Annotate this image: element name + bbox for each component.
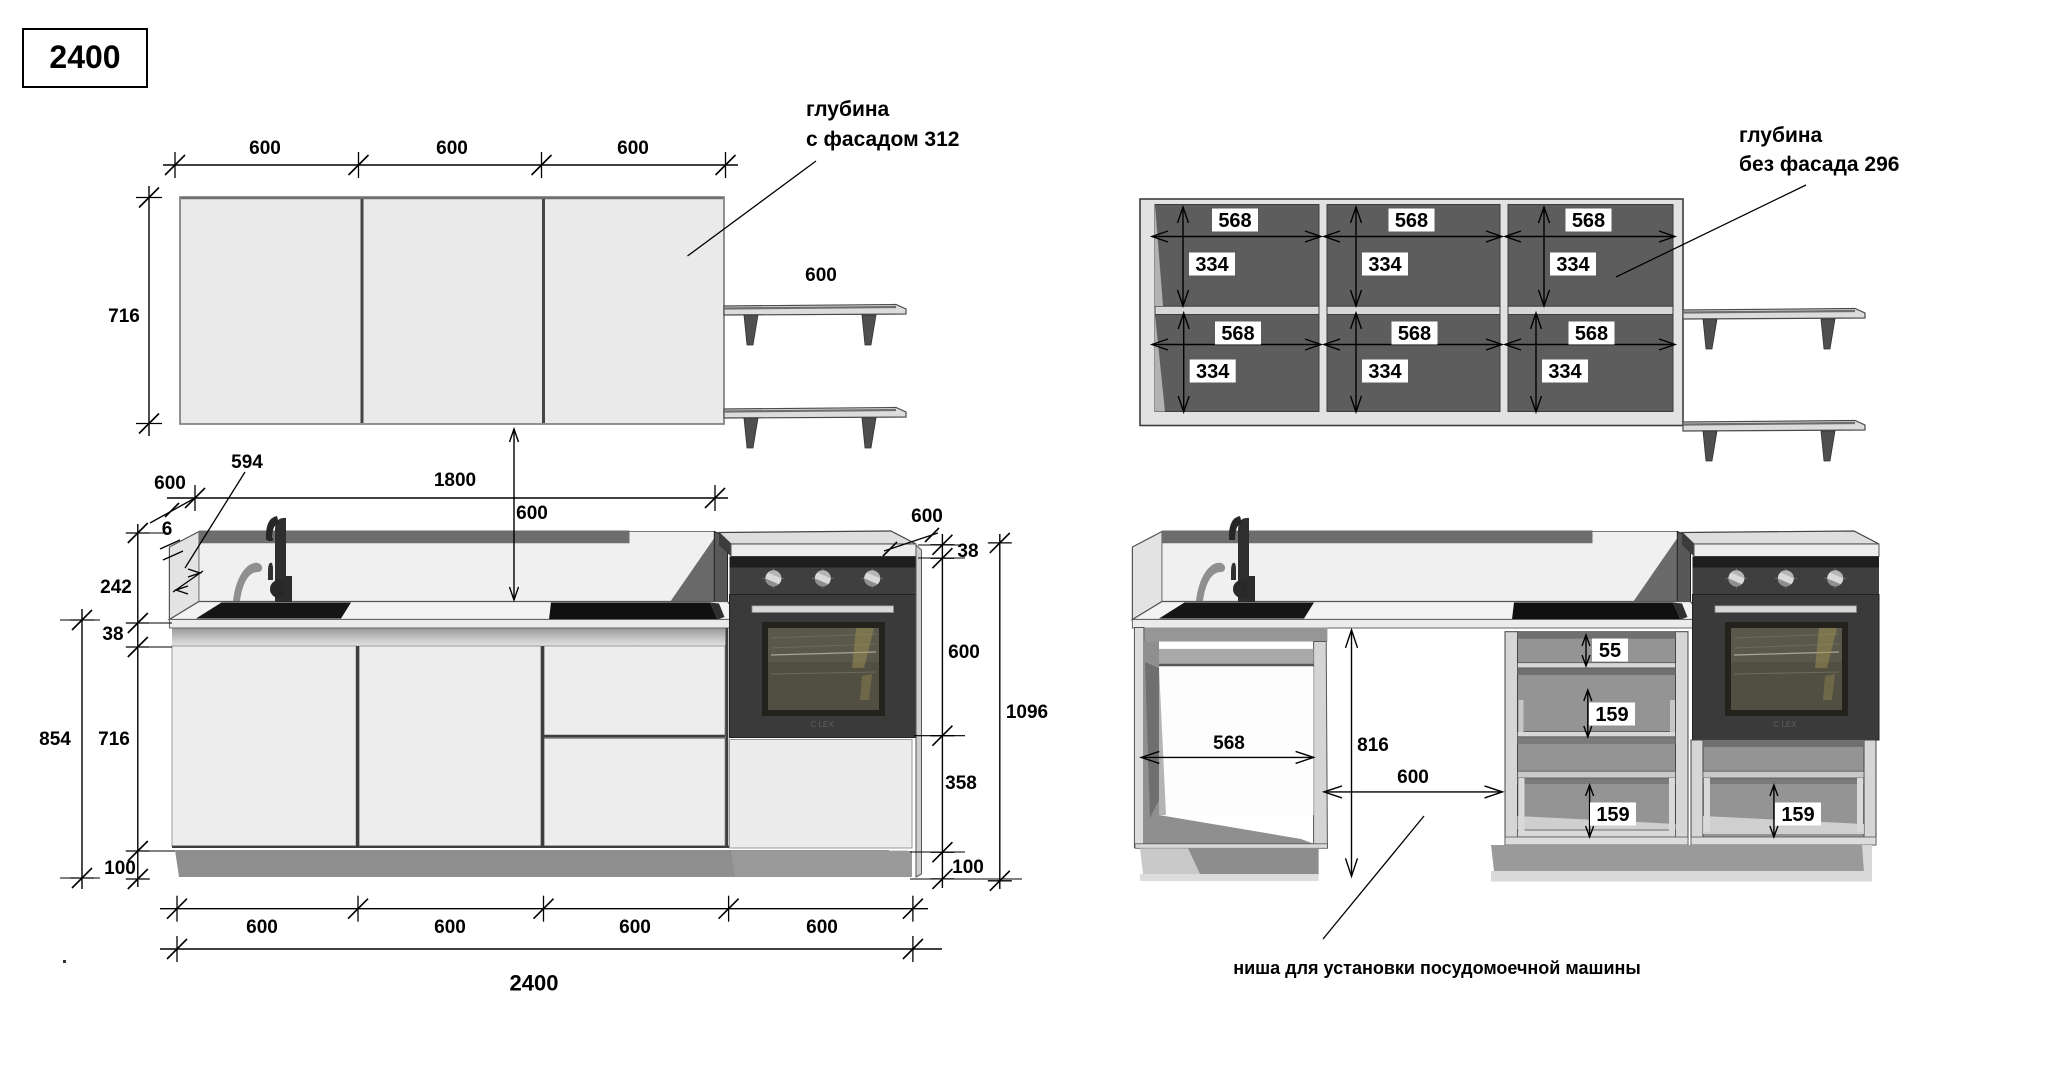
svg-text:6: 6: [162, 519, 173, 540]
svg-text:100: 100: [104, 858, 136, 879]
svg-text:1096: 1096: [1006, 702, 1048, 723]
svg-text:глубина: глубина: [806, 98, 890, 121]
svg-text:C LEX: C LEX: [1773, 720, 1797, 729]
svg-text:334: 334: [1556, 254, 1590, 276]
svg-text:100: 100: [952, 857, 984, 878]
svg-text:242: 242: [100, 577, 132, 598]
svg-text:159: 159: [1596, 804, 1629, 826]
svg-text:594: 594: [231, 452, 263, 473]
svg-text:600: 600: [246, 917, 278, 938]
svg-text:854: 854: [39, 729, 71, 750]
svg-text:C LEX: C LEX: [810, 720, 834, 729]
svg-text:568: 568: [1572, 210, 1605, 232]
svg-text:2400: 2400: [510, 971, 559, 996]
svg-text:358: 358: [945, 773, 977, 794]
svg-text:568: 568: [1575, 323, 1608, 345]
svg-text:глубина: глубина: [1739, 124, 1823, 147]
svg-text:568: 568: [1218, 210, 1251, 232]
svg-text:159: 159: [1781, 804, 1814, 826]
svg-text:600: 600: [805, 265, 837, 286]
svg-text:38: 38: [957, 541, 978, 562]
svg-text:568: 568: [1213, 733, 1245, 754]
svg-text:600: 600: [619, 917, 651, 938]
svg-text:55: 55: [1599, 640, 1621, 662]
svg-text:1800: 1800: [434, 470, 476, 491]
svg-text:568: 568: [1221, 323, 1254, 345]
svg-text:568: 568: [1398, 323, 1431, 345]
svg-text:716: 716: [108, 306, 140, 327]
svg-text:334: 334: [1195, 254, 1229, 276]
svg-text:334: 334: [1196, 361, 1230, 383]
svg-text:с фасадом 312: с фасадом 312: [806, 128, 959, 151]
svg-text:816: 816: [1357, 735, 1389, 756]
svg-text:600: 600: [154, 473, 186, 494]
svg-text:600: 600: [617, 138, 649, 159]
svg-text:159: 159: [1595, 704, 1628, 726]
svg-text:600: 600: [436, 138, 468, 159]
svg-text:600: 600: [1397, 767, 1429, 788]
svg-text:568: 568: [1395, 210, 1428, 232]
svg-text:без фасада 296: без фасада 296: [1739, 153, 1899, 176]
svg-text:ниша для установки посудомоечн: ниша для установки посудомоечной машины: [1233, 958, 1641, 978]
svg-text:716: 716: [98, 729, 130, 750]
svg-text:334: 334: [1368, 254, 1402, 276]
svg-text:600: 600: [249, 138, 281, 159]
svg-text:2400: 2400: [49, 39, 120, 75]
svg-text:334: 334: [1548, 361, 1582, 383]
svg-text:600: 600: [948, 642, 980, 663]
svg-text:600: 600: [806, 917, 838, 938]
svg-text:600: 600: [911, 506, 943, 527]
svg-text:38: 38: [102, 624, 123, 645]
svg-text:334: 334: [1368, 361, 1402, 383]
svg-text:600: 600: [516, 503, 548, 524]
svg-text:600: 600: [434, 917, 466, 938]
